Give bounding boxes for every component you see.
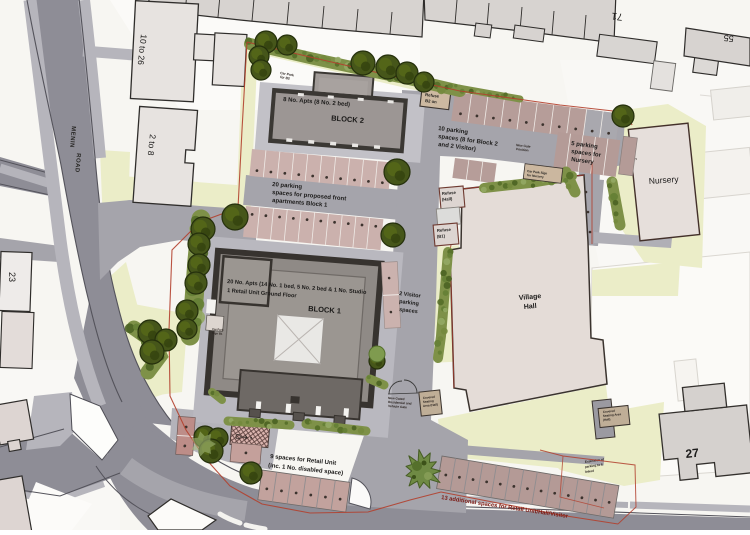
svg-text:Hall: Hall bbox=[524, 303, 537, 311]
svg-text:23: 23 bbox=[7, 272, 17, 282]
svg-text:(B1): (B1) bbox=[437, 233, 446, 239]
svg-text:71: 71 bbox=[611, 10, 624, 22]
svg-text:(Hall): (Hall) bbox=[603, 417, 611, 422]
svg-text:Nursery: Nursery bbox=[648, 174, 679, 186]
svg-text:(Hall): (Hall) bbox=[442, 196, 453, 202]
svg-text:27: 27 bbox=[685, 446, 700, 461]
svg-text:Sign B1: Sign B1 bbox=[212, 331, 223, 336]
svg-text:55: 55 bbox=[723, 33, 734, 44]
